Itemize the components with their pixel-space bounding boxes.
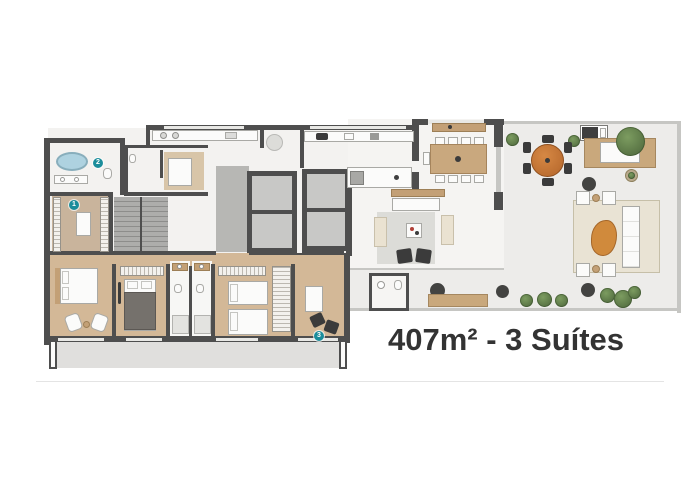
shrub-2 [537, 292, 552, 307]
column-2 [496, 285, 509, 298]
island-decor [394, 175, 399, 180]
terrace-chair [564, 142, 572, 153]
dining-sideboard [432, 123, 486, 132]
sofa-main [392, 198, 440, 211]
floor-foyer [216, 166, 249, 252]
master-pillow-2 [62, 287, 69, 300]
bath-sink-2 [74, 177, 79, 182]
cooktop-icon [350, 171, 364, 185]
bottom-divider [36, 381, 664, 382]
bath-toilet [103, 168, 112, 179]
stairs-flight-right [142, 197, 168, 251]
marker-closet: 1 [69, 200, 79, 210]
suite3-closet [272, 266, 291, 332]
shrub-1 [520, 294, 533, 307]
window-suite2 [126, 338, 162, 341]
elevator-cab-2b [307, 212, 345, 246]
suite2-pillow-1 [127, 281, 138, 289]
terrace-railing-top [504, 121, 680, 124]
armchair-dark-1 [396, 248, 413, 264]
coffee-table-book-red [410, 227, 414, 231]
corner-plant-3 [628, 286, 641, 299]
armchair-dark-2 [415, 248, 432, 264]
dining-chair [435, 175, 445, 183]
sofa-left [374, 217, 387, 247]
kitchen-sink-icon [344, 133, 354, 140]
balcony-post-right [339, 340, 347, 369]
wall-corridor-top-a [44, 251, 216, 255]
lounge-chair [576, 263, 590, 277]
table-centerpiece [455, 156, 461, 162]
stove-icon [316, 133, 328, 140]
master-pillow-1 [62, 271, 69, 284]
laundry-sink [225, 132, 237, 139]
wall-room-suite2 [166, 264, 170, 338]
lounge-sofa [622, 206, 640, 268]
terrace-side-table [582, 177, 596, 191]
suite3-wardrobe [218, 266, 266, 276]
terrace-bench [428, 294, 488, 307]
stairs-flight-left [114, 197, 140, 251]
suite2-wardrobe [120, 266, 164, 276]
window-laundry [164, 126, 244, 129]
floor-balcony [50, 341, 346, 368]
office-desk [305, 286, 323, 312]
closet-island [76, 212, 91, 236]
closet-wardrobe-right [100, 197, 109, 252]
window-suite3 [216, 338, 258, 341]
window-master [58, 338, 104, 341]
wall-outer-left [44, 138, 50, 345]
bath-sink-1 [60, 177, 65, 182]
washer [160, 132, 167, 139]
lavabo-sink [377, 281, 385, 289]
lounge-chair [602, 263, 616, 277]
suite3-pillow-2 [230, 312, 238, 331]
wall-office-right [344, 253, 350, 343]
plant-pot-leaves [628, 172, 635, 179]
dryer [172, 132, 179, 139]
balcony-post-left [49, 340, 57, 369]
suite2-pillow-2 [141, 281, 152, 289]
stairs-rail [140, 197, 142, 251]
wall-closet-top [44, 192, 112, 196]
wall-dining-top-a [416, 119, 428, 125]
coffee-table-book-dark [415, 231, 419, 235]
lavabo-room [369, 273, 409, 311]
bath1-toilet [174, 284, 182, 293]
bathtub [56, 152, 88, 171]
bath2-shower [194, 315, 211, 334]
terrace-chair [542, 135, 554, 143]
dining-chair [461, 175, 471, 183]
daybed-plant [616, 127, 645, 156]
floor-plan-page: 1 2 3 407m² - 3 Suítes [0, 0, 700, 500]
shrub-3 [555, 294, 568, 307]
wall-terrace-upper [494, 119, 503, 147]
suite3-pillow-1 [230, 284, 238, 302]
wall-terrace-lower [494, 192, 503, 210]
service-basin [266, 134, 283, 151]
wall-laundry-right [260, 128, 264, 148]
wall-service-bottom [124, 192, 208, 196]
sideboard-decor [448, 125, 452, 129]
elevator-cab-1b [252, 214, 292, 248]
coffee-table [406, 223, 422, 238]
lounge-side-table-2 [592, 265, 600, 273]
laundry-counter [152, 130, 258, 141]
terrace-chair [523, 163, 531, 174]
dining-chair-end [423, 152, 430, 165]
potted-plant-terrace-1 [506, 133, 519, 146]
marker-office-suite: 3 [314, 331, 324, 341]
wall-bath-top [44, 138, 122, 143]
lounge-side-table-1 [592, 194, 600, 202]
dining-chair [474, 175, 484, 183]
wall-room-office [291, 264, 295, 338]
dining-chair [448, 175, 458, 183]
window-kitchen [310, 126, 406, 129]
marker-master-bath: 2 [93, 158, 103, 168]
wall-service-top [124, 145, 208, 148]
terrace-glass-door-line [350, 268, 504, 270]
service-wc-toilet [129, 154, 136, 163]
terrace-chair [564, 163, 572, 174]
wall-bath-divider [189, 266, 192, 338]
bath2-sink [199, 264, 204, 269]
master-side-table [83, 321, 90, 328]
corner-plant-1 [600, 288, 615, 303]
closet-wardrobe-left [53, 197, 61, 252]
maid-bed [168, 158, 192, 186]
bath1-shower [172, 315, 189, 334]
plan-title: 407m² - 3 Suítes [388, 322, 624, 358]
suite2-tv-panel [118, 282, 121, 304]
glass-slider-terrace [496, 147, 501, 192]
wall-service-divider [160, 150, 163, 178]
wall-service-left [124, 145, 128, 195]
column-3 [581, 283, 595, 297]
bath1-sink [177, 264, 182, 269]
bath2-toilet [196, 284, 204, 293]
terrace-table-decor [545, 158, 550, 163]
suite2-blanket [124, 292, 156, 330]
terrace-chair [542, 178, 554, 186]
lounge-chair [576, 191, 590, 205]
terrace-chair [523, 142, 531, 153]
elevator-cab-2a [307, 174, 345, 208]
elevator-cab-1a [252, 176, 292, 210]
wall-room-suite3 [211, 264, 215, 338]
lounge-chair [602, 191, 616, 205]
oven-icon [370, 133, 379, 140]
lavabo-toilet [394, 280, 402, 290]
wall-room-master [112, 264, 116, 338]
living-console [391, 189, 445, 197]
sofa-right [441, 215, 454, 245]
terrace-railing-right [677, 121, 681, 313]
grill-side [600, 128, 606, 138]
